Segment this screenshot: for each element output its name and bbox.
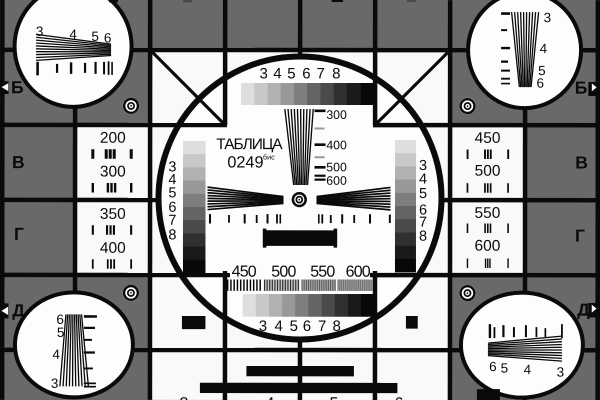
svg-text:450: 450	[232, 264, 257, 281]
svg-text:600: 600	[475, 238, 501, 255]
svg-text:3: 3	[179, 395, 188, 400]
svg-text:5: 5	[290, 318, 298, 335]
svg-text:8: 8	[168, 227, 176, 243]
svg-text:3: 3	[36, 24, 44, 39]
svg-text:ТАБЛИЦА: ТАБЛИЦА	[216, 136, 283, 153]
svg-text:6: 6	[537, 76, 545, 91]
svg-text:450: 450	[475, 130, 501, 147]
svg-text:4: 4	[274, 318, 282, 335]
svg-text:400: 400	[326, 138, 347, 152]
svg-text:8: 8	[419, 229, 427, 245]
svg-text:Г: Г	[575, 226, 585, 246]
svg-text:Б: Б	[11, 77, 24, 97]
svg-text:6: 6	[489, 359, 497, 374]
svg-text:3: 3	[51, 376, 59, 391]
svg-text:В: В	[575, 152, 588, 172]
svg-text:4: 4	[540, 41, 548, 56]
svg-text:7: 7	[168, 213, 176, 229]
svg-text:6: 6	[104, 30, 112, 45]
svg-text:300: 300	[100, 163, 126, 180]
svg-text:500: 500	[271, 264, 296, 281]
svg-text:3: 3	[544, 10, 552, 25]
svg-text:8: 8	[332, 65, 340, 82]
svg-text:350: 350	[100, 206, 126, 223]
svg-text:3: 3	[557, 365, 565, 380]
svg-text:4: 4	[524, 362, 532, 377]
svg-text:550: 550	[310, 264, 335, 281]
svg-text:Б: Б	[575, 78, 588, 98]
svg-text:В: В	[12, 152, 25, 172]
svg-text:500: 500	[326, 160, 347, 174]
svg-text:7: 7	[316, 65, 324, 82]
svg-text:Д: Д	[12, 300, 25, 320]
svg-text:Г: Г	[14, 224, 24, 244]
svg-text:5: 5	[501, 361, 509, 376]
svg-text:5: 5	[91, 29, 99, 44]
svg-text:500: 500	[475, 163, 501, 180]
svg-text:4: 4	[52, 347, 60, 362]
svg-text:8: 8	[333, 318, 341, 335]
svg-text:400: 400	[100, 240, 126, 257]
svg-text:5: 5	[419, 186, 427, 202]
svg-text:5: 5	[287, 65, 295, 82]
svg-text:7: 7	[318, 318, 326, 335]
svg-text:600: 600	[326, 174, 347, 188]
svg-text:3: 3	[259, 318, 267, 335]
svg-text:550: 550	[475, 205, 501, 222]
svg-text:4: 4	[273, 65, 281, 82]
svg-text:6: 6	[303, 318, 311, 335]
svg-text:4: 4	[69, 27, 77, 42]
svg-text:3: 3	[259, 65, 267, 82]
svg-text:300: 300	[326, 108, 347, 122]
svg-text:200: 200	[100, 130, 126, 147]
svg-text:600: 600	[346, 264, 371, 281]
svg-text:5: 5	[57, 325, 65, 340]
svg-text:4: 4	[265, 395, 274, 400]
svg-text:6: 6	[302, 65, 310, 82]
